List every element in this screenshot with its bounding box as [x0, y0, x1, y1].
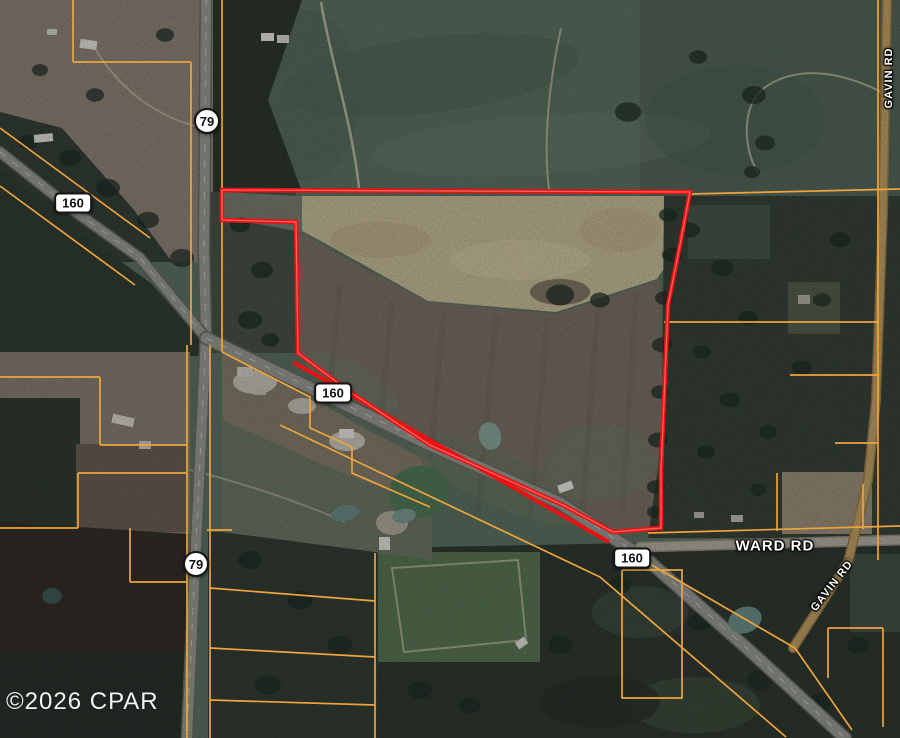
copyright-watermark: ©2026 CPAR — [6, 688, 159, 716]
map-canvas — [0, 0, 900, 738]
satellite-map: 7979160160160GAVIN RDGAVIN RDWARD RD ©20… — [0, 0, 900, 738]
noise-texture — [0, 0, 900, 738]
